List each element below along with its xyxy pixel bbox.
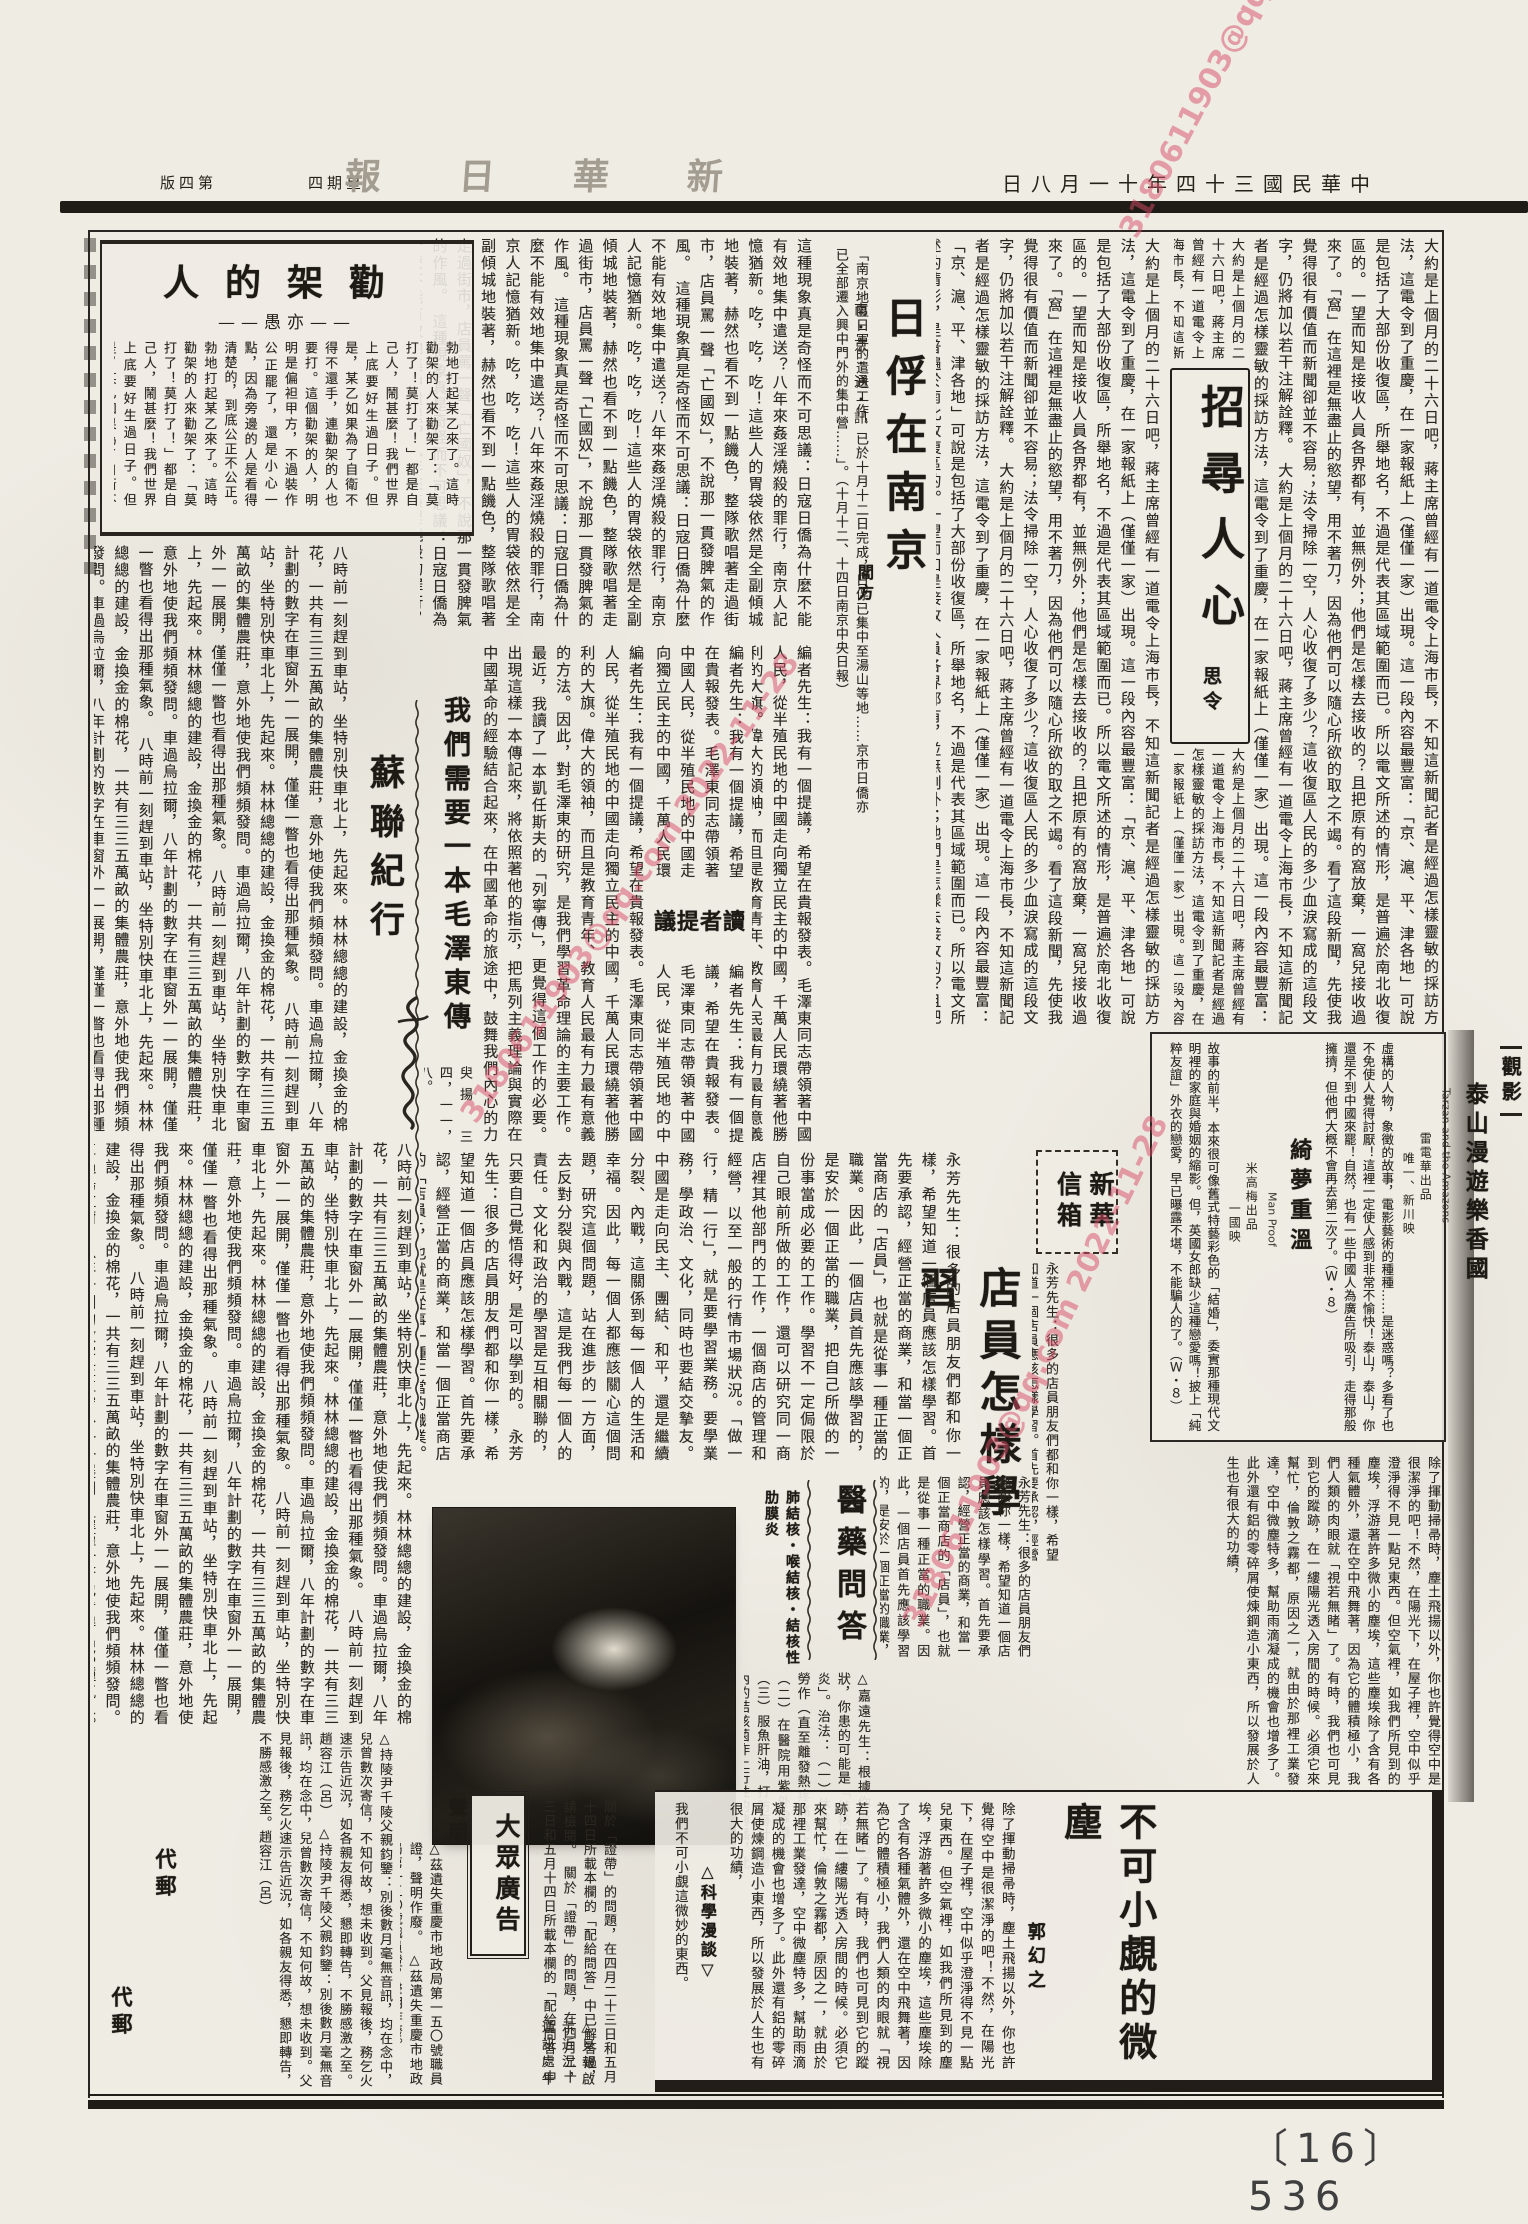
film-section-label: 觀影 [1496, 1056, 1525, 1106]
duzhe-body-first: 編者先生：我有一個提議，希望在貴報發表。毛澤東同志帶領著中國人民，從半殖民地的中… [752, 645, 816, 1143]
weichen-box: 不可小覷的微塵 郭幻之 除了揮動掃帚時，塵土飛揚以外，你也許覺得空中是很潔淨的吧… [655, 1790, 1444, 2092]
masthead-rule [60, 201, 1528, 213]
weichen-ending: 我們不可小覷這微妙的東西。 [668, 1802, 690, 2070]
quanjia-body: 勃地打起某乙來了。這時勸架的人來勸架了：「莫打了！莫打了！」都是自己人，鬧甚麼！… [114, 341, 460, 507]
duzhe-label-block: 議提者讀 [652, 884, 748, 958]
zhaoxun-body-right: 大約是上個月的二十六日吧，蔣主席曾經有一道電令上海市長，不知這新聞記者是經過怎樣… [1253, 238, 1443, 1026]
xinhua-body-tail: 永芳先生：很多的店員朋友們都和你一樣，希望知道一個店員應該怎樣學習。首先要承認，… [880, 1476, 1032, 1658]
film2-cinema: 一國映 [1226, 1202, 1243, 1432]
film1-title-en: Tarzan and the Amazons [1439, 1088, 1452, 1432]
zhaoxun-body-above-box: 大約是上個月的二十六日吧，蔣主席曾經有一道電令上海市長，不知這新聞記者是經過怎樣… [1174, 238, 1246, 360]
film1-review: 虛構的人物，象徵的故事，電影藝術的種種……是迷惑嗎？多看了也不免使人覺得討厭！這… [1320, 1042, 1395, 1432]
film-section-label-block: 觀影 [1496, 1042, 1525, 1116]
sulian-signature-scribble [378, 992, 448, 1132]
book-page-number: 〔16〕 536 [1248, 2116, 1528, 2220]
wavy-divider [745, 1466, 1035, 1472]
film2-review: 故事的前半，本來很可像舊式特藝彩色的「結婚」，委實那種現代文明裡的家庭與婚姻的縮… [1165, 1042, 1221, 1432]
wavy-divider [1150, 1446, 1444, 1452]
yiyao-subtitle: 肺結核・喉結核・結核性肋膜炎 [756, 1490, 802, 1666]
quanjia-title: 人的架勸 [102, 254, 472, 306]
duzhe-label: 議提者讀 [654, 904, 746, 936]
bottom-rule-thin [88, 2094, 1444, 2096]
yiyao-title: 醫藥問答 [816, 1484, 870, 1662]
wavy-divider [420, 1140, 1140, 1146]
quanjia-byline: ——愚亦—— [102, 308, 472, 333]
margin-bleed-strip [84, 238, 96, 574]
weichen-title: 不可小覷的微塵 [1053, 1802, 1163, 2070]
duzhe-body-left: 編者先生：我有一個提議，希望在貴報發表。毛澤東同志帶領著中國人民，從半殖民地的中… [478, 645, 648, 1143]
film2-title: 綺夢重溫 [1283, 1138, 1315, 1432]
dazhong-box: 大眾廣告 [470, 1794, 526, 1956]
wavy-divider [420, 632, 818, 638]
sulian-title: 蘇聯紀行 [358, 754, 410, 972]
wavy-divider-vertical [806, 1480, 812, 1660]
zhaoxun-body-below-box: 大約是上個月的二十六日吧，蔣主席曾經有一道電令上海市長，不知這新聞記者是經過怎樣… [1174, 748, 1246, 1026]
page-number-label: 版四第 [160, 172, 217, 193]
wavy-divider-vertical [872, 1480, 878, 1660]
film1-title: 泰山漫遊樂香國 [1457, 1082, 1491, 1432]
rifu-title: 日俘在南京 [880, 296, 934, 650]
film2-title-en: Man Proof [1265, 1192, 1278, 1432]
label-rule-top [1500, 1046, 1522, 1049]
weichen-body: 除了揮動掃帚時，塵土飛揚以外，你也許覺得空中是很潔淨的吧！不然，在陽光下，在屋子… [724, 1802, 1017, 2070]
xinhua-body-main: 永芳先生：很多的店員朋友們都和你一樣，希望知道一個店員應該怎樣學習。首先要承認，… [420, 1152, 965, 1462]
quanjia-box: 人的架勸 ——愚亦—— 勃地打起某乙來了。這時勸架的人來勸架了：「莫打了！莫打了… [100, 240, 474, 536]
weichen-column-label: △科學漫談▽ [695, 1862, 719, 2070]
classified-notice-c: △持陵尹千陵父親鈞鑒：別後數月毫無音訊，均在念中，兒曾數次寄信，不知何故，想未收… [94, 1732, 394, 2088]
film-review-box: 觀影 泰山漫遊樂香國 Tarzan and the Amazons 雷電華出品 … [1150, 1032, 1446, 1442]
newspaper-page-scan: 版四第 四期星 報日華新 日八月一十年四十三國民華中 大約是上個月的二十六日吧，… [0, 0, 1528, 2224]
xinhua-label-box: 新華信箱 [1036, 1150, 1118, 1254]
sulian-body-upper: 八時前一刻趕到車站，坐特別快車北上，先起來。林林總總的建設，金換金的棉花，一共有… [94, 545, 352, 1133]
sulian-body-lower: 八時前一刻趕到車站，坐特別快車北上，先起來。林林總總的建設，金換金的棉花，一共有… [94, 1142, 416, 1726]
film2-studio: 米高梅出品 [1243, 1162, 1260, 1432]
issue-date: 日八月一十年四十三國民華中 [1002, 168, 1379, 197]
film1-cinema: 唯一、新川映 [1400, 1152, 1417, 1432]
film1-credits: 雷電華出品 唯一、新川映 [1400, 1042, 1434, 1432]
dazhong-title: 大眾廣告 [472, 1796, 524, 1954]
shengming-label: 聲明 [444, 1798, 471, 1846]
rifu-subtitle: 南・京・通・訊 [850, 302, 870, 428]
zhaoxun-byline: 思令 [1198, 666, 1225, 716]
label-rule-bottom [1500, 1113, 1522, 1116]
classified-notice-b: △茲遺失重慶市地政局第一五〇號職員證，聲明作廢。 △茲遺失重慶市地政局第一五〇號… [400, 1842, 444, 2086]
weichen-body-upper: 除了揮動掃帚時，塵土飛揚以外，你也許覺得空中是很潔淨的吧！不然，在陽光下，在屋子… [1152, 1456, 1442, 1786]
duzhe-body-above-label: 編者先生：我有一個提議，希望在貴報發表。毛澤東同志帶領著中國人民，從半殖民地的中… [652, 645, 748, 879]
wavy-divider [652, 884, 748, 890]
film1-studio: 雷電華出品 [1417, 1132, 1434, 1432]
xinhua-opening-column: 永芳先生：很多的店員朋友們都和你一樣，希望知道一個店員應該怎樣學習。首先要承認，… [1032, 1262, 1060, 1562]
masthead-title: 報日華新 [343, 148, 803, 200]
rifu-byline: 閻方 [852, 564, 876, 604]
wavy-divider [652, 946, 748, 952]
film2-credits: 米高梅出品 一國映 [1226, 1042, 1260, 1432]
rifu-body: 這種現象真是奇怪而不可思議：日寇日僑為什麼不能有效地集中遣送？八年來姦淫燒殺的罪… [420, 238, 816, 628]
bottom-rule-thick [88, 2100, 1444, 2109]
weichen-byline: 郭幻之 [1022, 1922, 1048, 2070]
zhaoxun-title: 招尋人心 [1186, 384, 1250, 648]
zhaoxun-body-left: 大約是上個月的二十六日吧，蔣主席曾經有一道電令上海市長，不知這新聞記者是經過怎樣… [936, 238, 1164, 1026]
duzhe-body-below-label: 編者先生：我有一個提議，希望在貴報發表。毛澤東同志帶領著中國人民，從半殖民地的中… [652, 964, 748, 1144]
zhaoxun-headline-box: 招尋人心 思令 [1170, 368, 1250, 744]
duzhe-signature: 臾揚 [457, 1066, 472, 1109]
xinhua-label: 新華信箱 [1038, 1152, 1116, 1252]
classified-notice-d: △見報啟示近況，通訊處牛角沱三〇號。 [536, 2020, 596, 2086]
